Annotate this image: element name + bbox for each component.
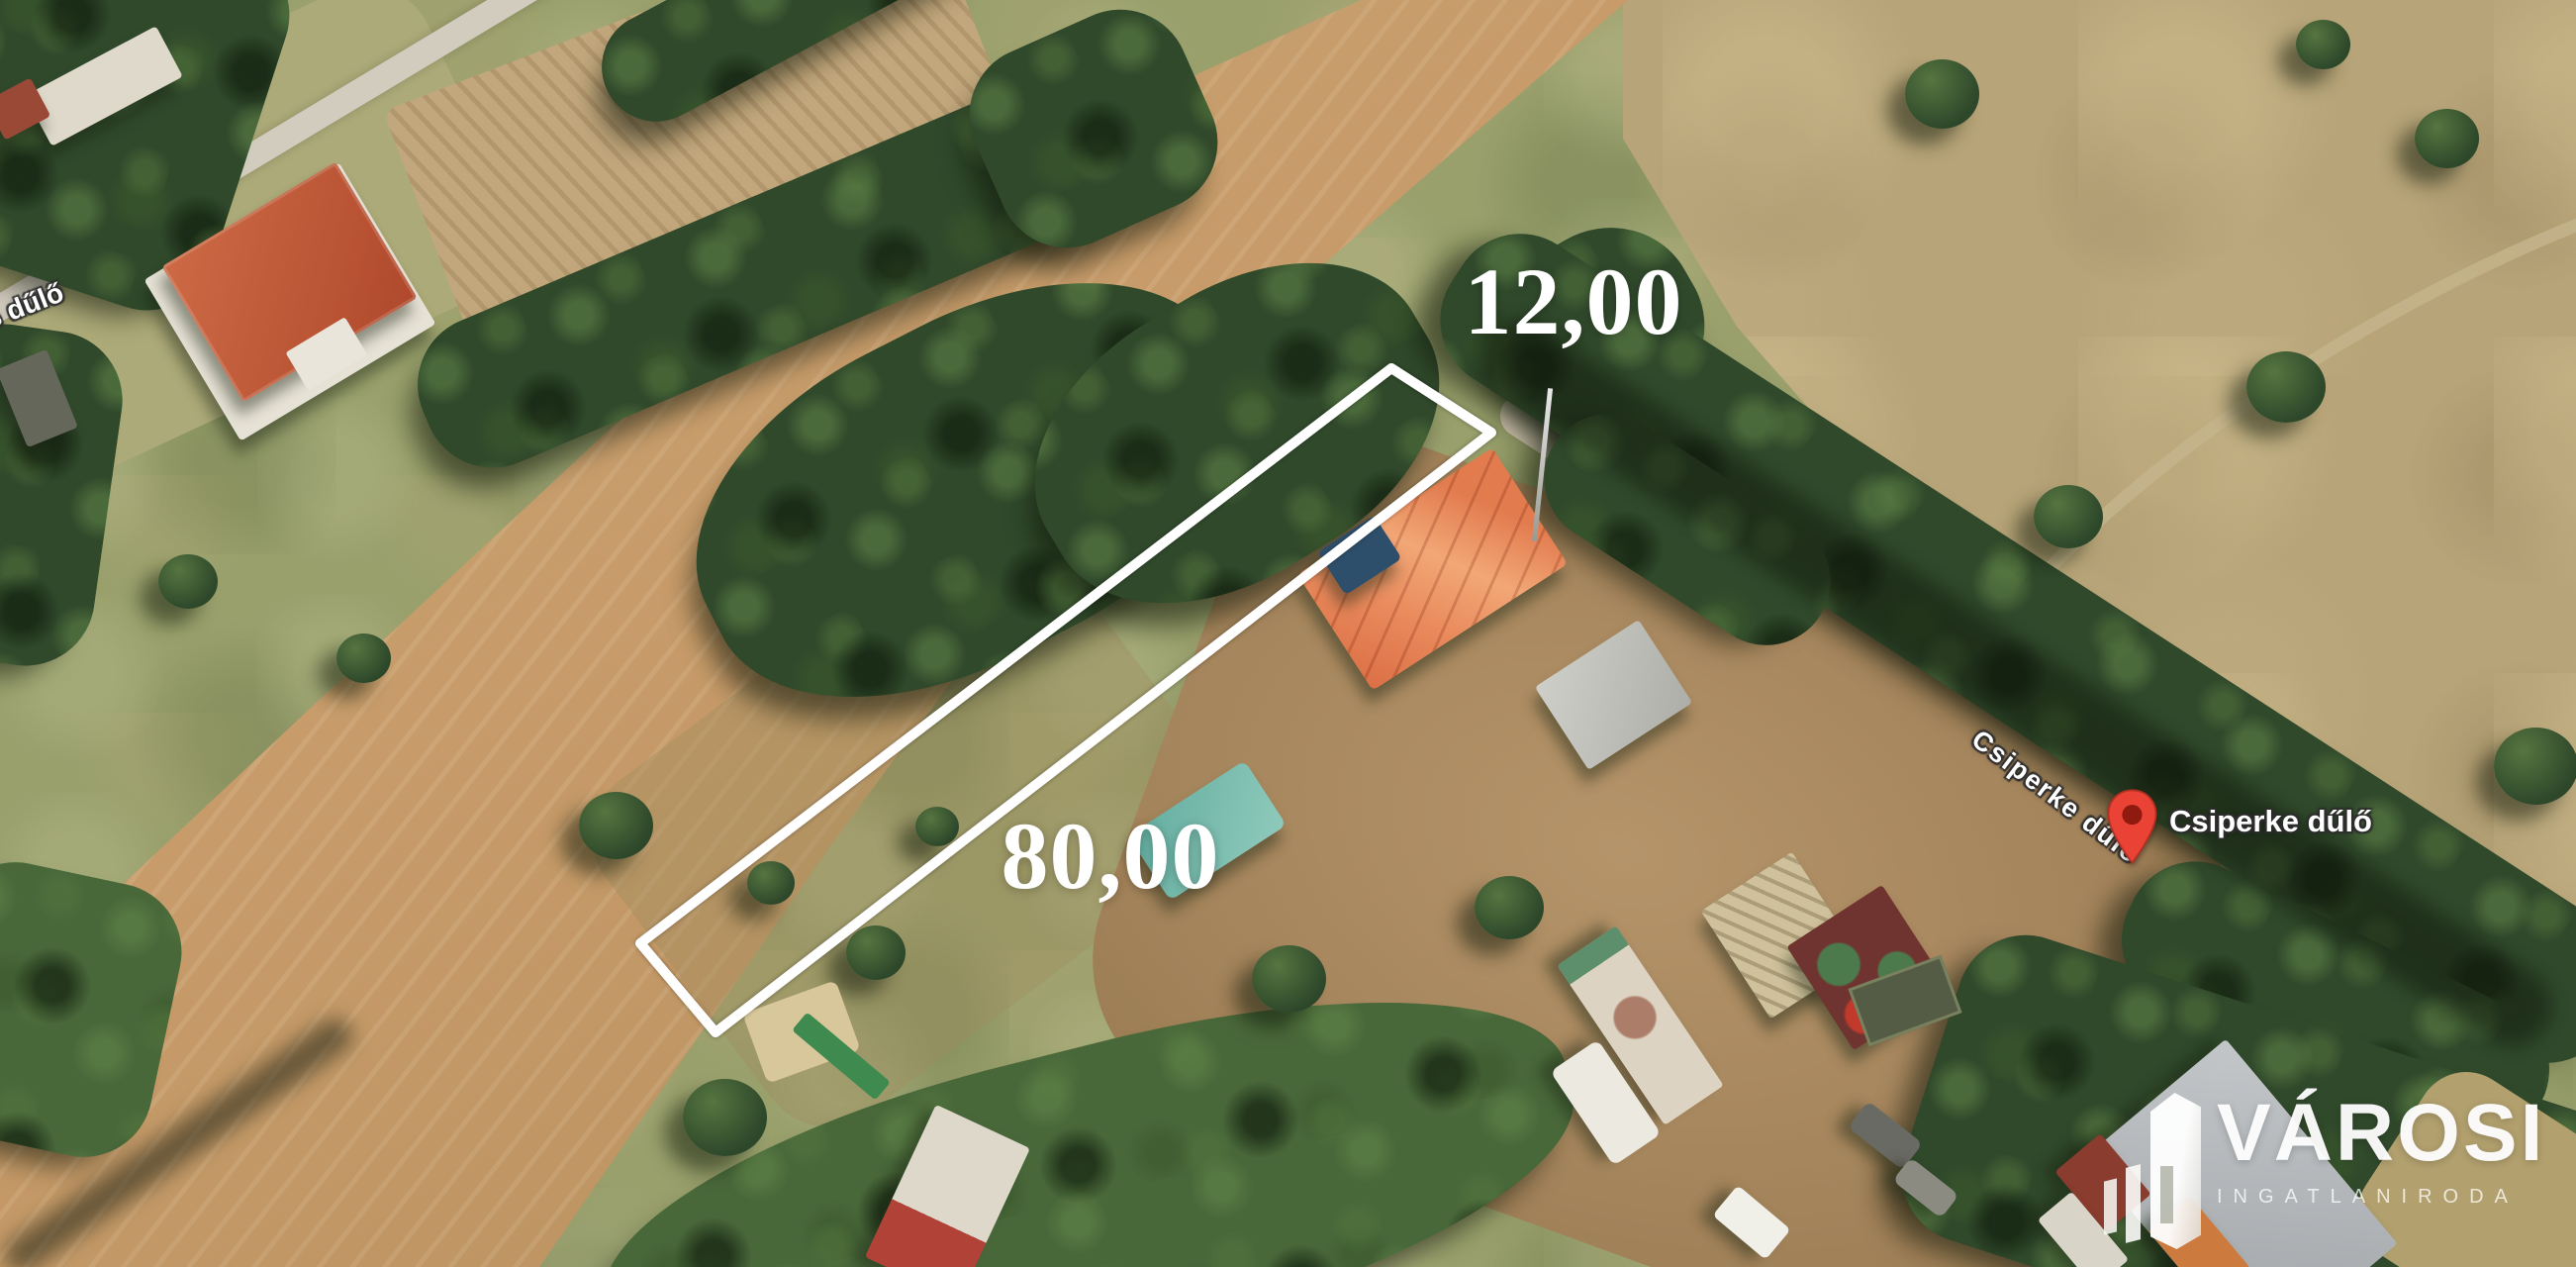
- logo-door: [2160, 1166, 2173, 1223]
- pin-place-label: Csiperke dűlő: [2169, 804, 2372, 839]
- brand-name: VÁROSI: [2217, 1093, 2545, 1174]
- parcel-outline: [640, 368, 1491, 1032]
- dimension-label-width: 12,00: [1425, 249, 1722, 354]
- logo-bar-medium: [2126, 1164, 2141, 1243]
- map-pin-icon: [2105, 788, 2159, 865]
- dimension-label-length: 80,00: [962, 804, 1259, 909]
- logo-bar-small: [2104, 1178, 2117, 1234]
- aerial-photo: 12,00 80,00 s dűlő Csiperke dűlő Csiperk…: [0, 0, 2576, 1267]
- parcel-layer: [0, 0, 2576, 1267]
- city-buildings-icon: [2104, 1093, 2201, 1249]
- logo-text: VÁROSI INGATLANIRODA: [2217, 1093, 2545, 1209]
- brand-tagline: INGATLANIRODA: [2217, 1186, 2545, 1209]
- brand-logo: VÁROSI INGATLANIRODA: [2104, 1093, 2545, 1249]
- logo-building: [2150, 1093, 2201, 1249]
